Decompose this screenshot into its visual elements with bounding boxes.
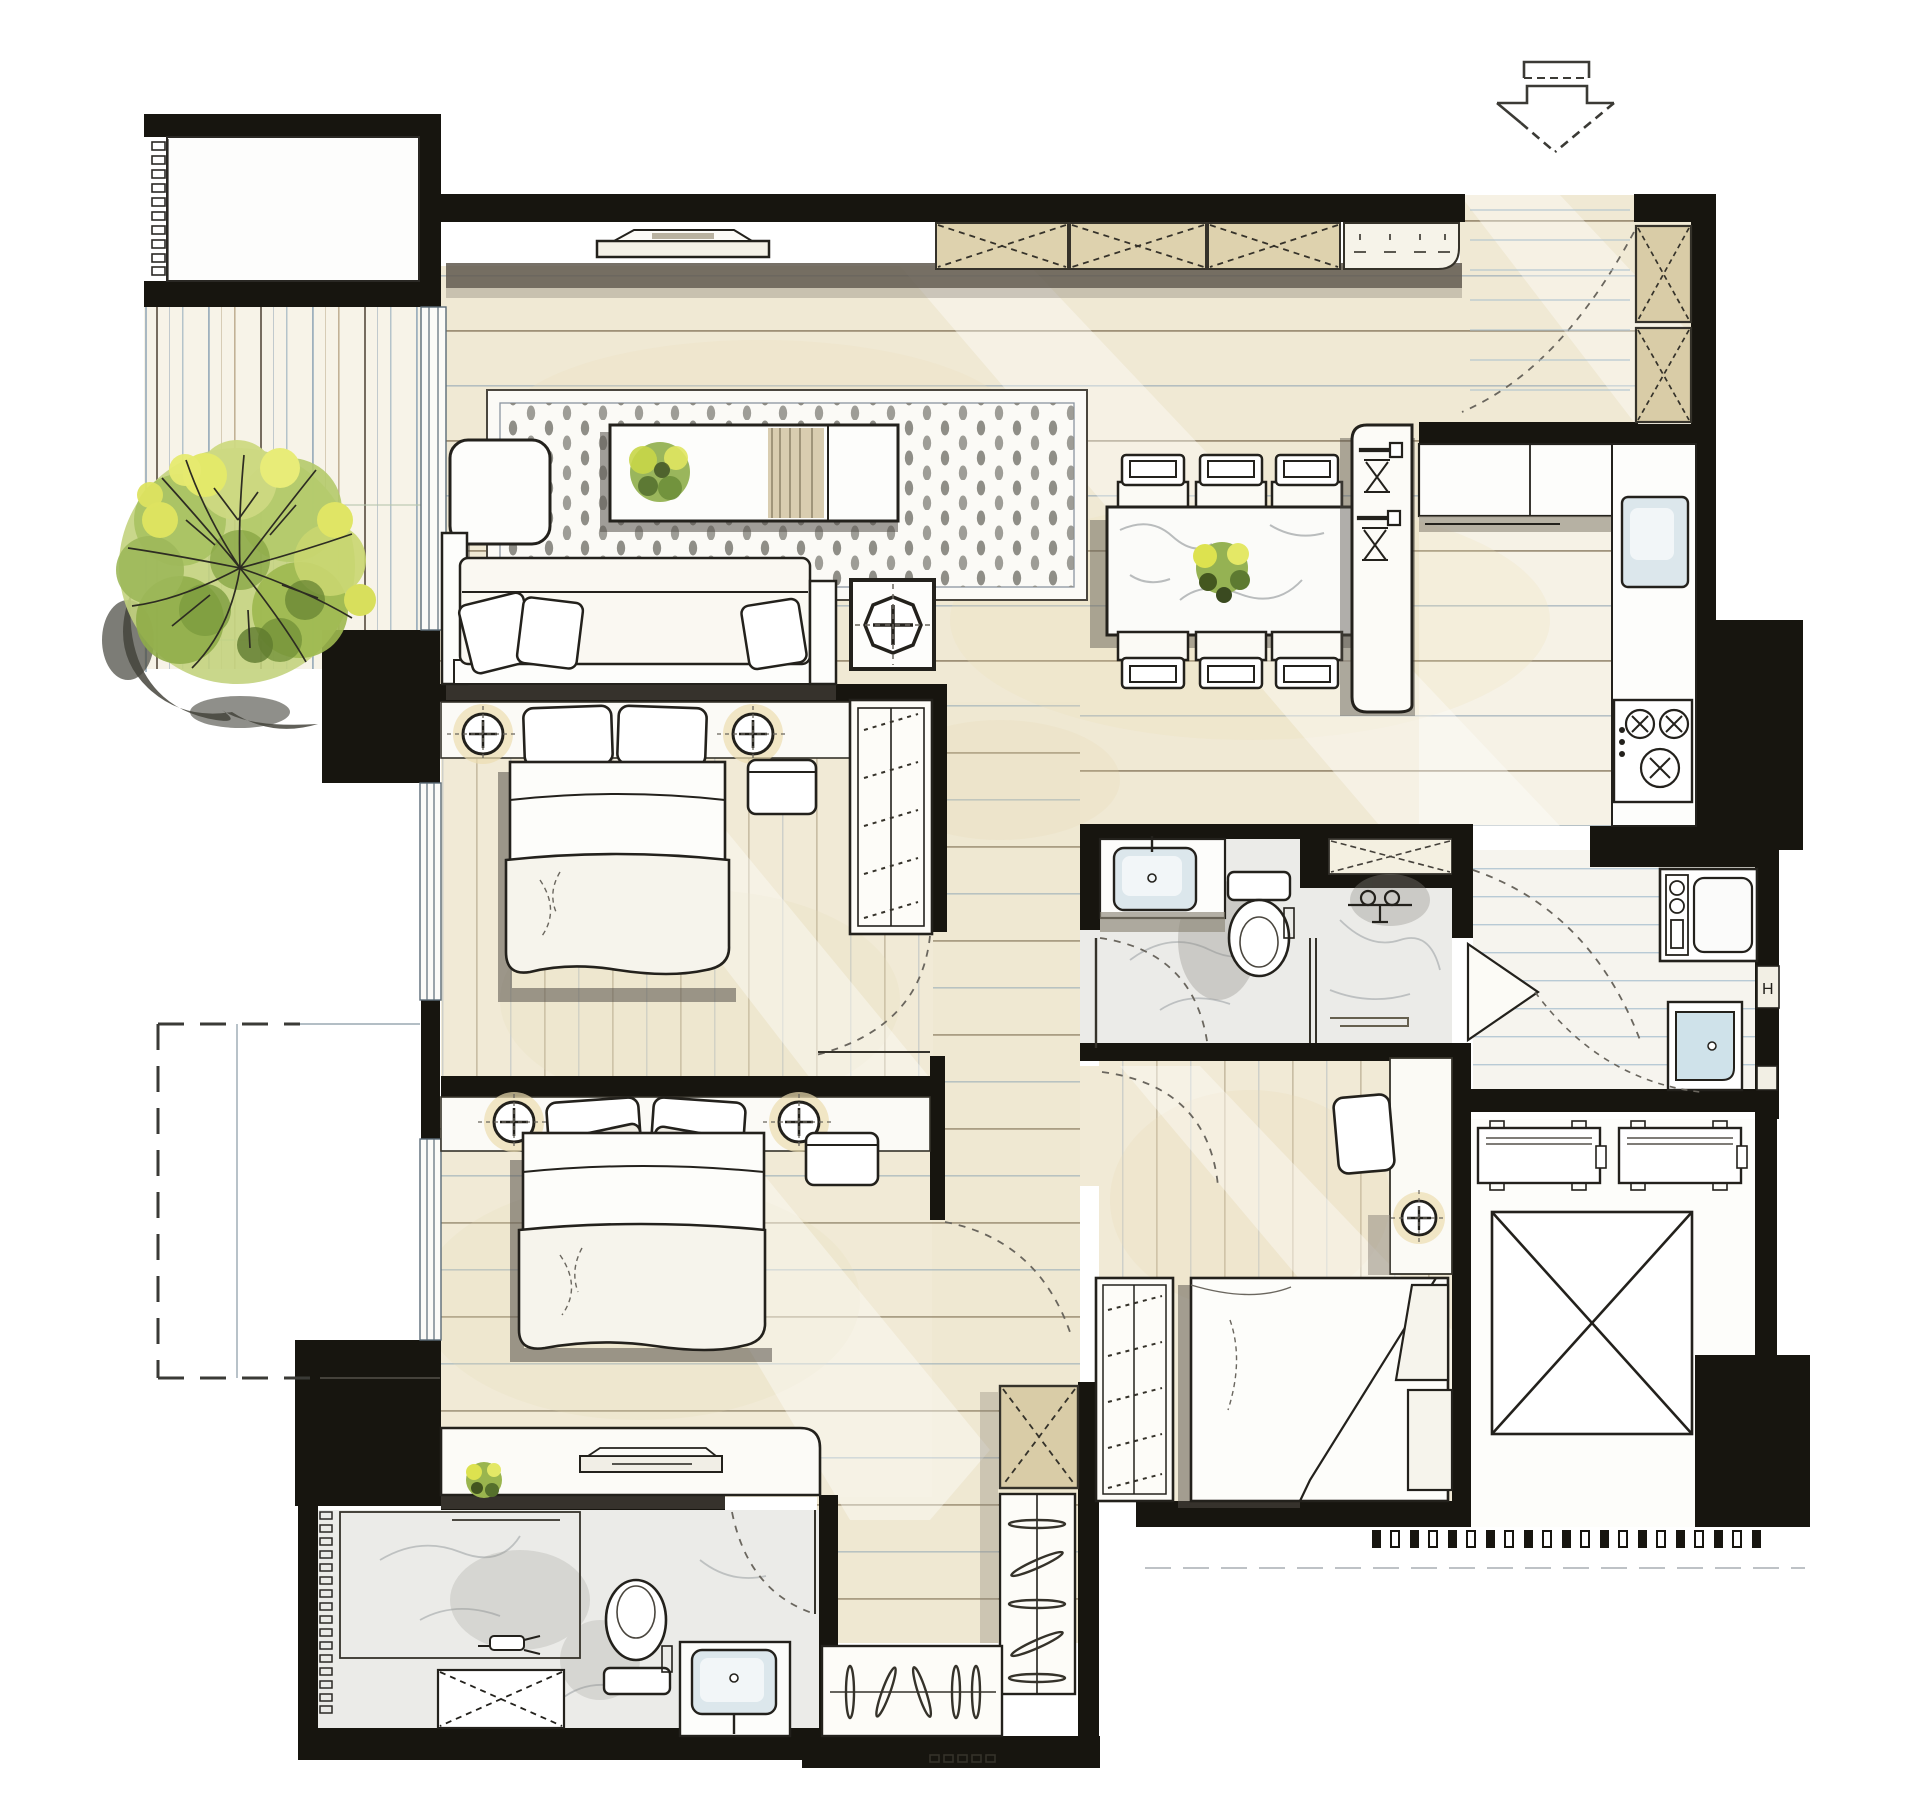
svg-text:H: H <box>1762 981 1774 998</box>
